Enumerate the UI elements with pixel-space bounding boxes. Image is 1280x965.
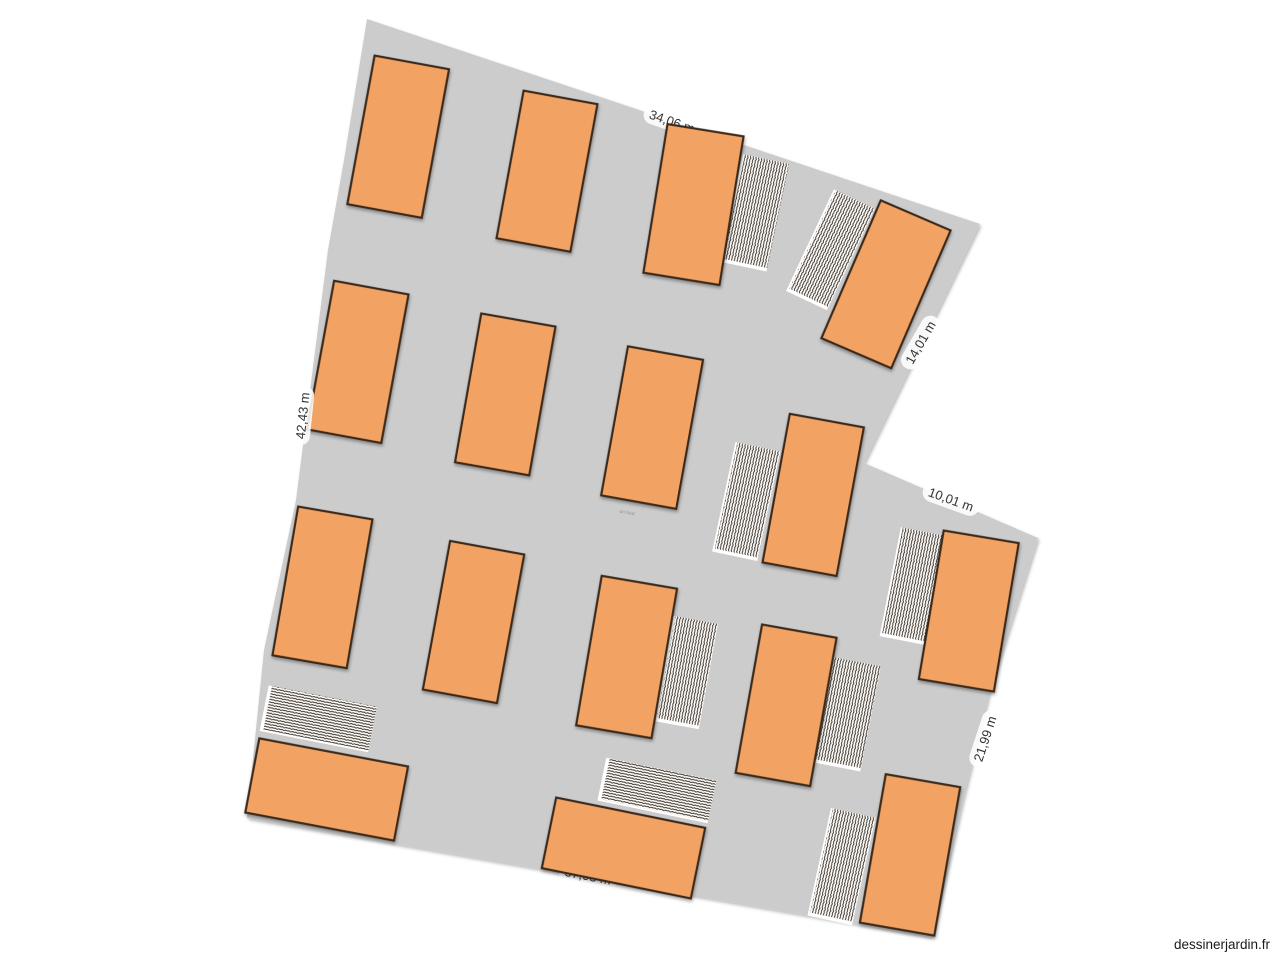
svg-text:dessinerjardin.fr: dessinerjardin.fr <box>1174 937 1271 952</box>
